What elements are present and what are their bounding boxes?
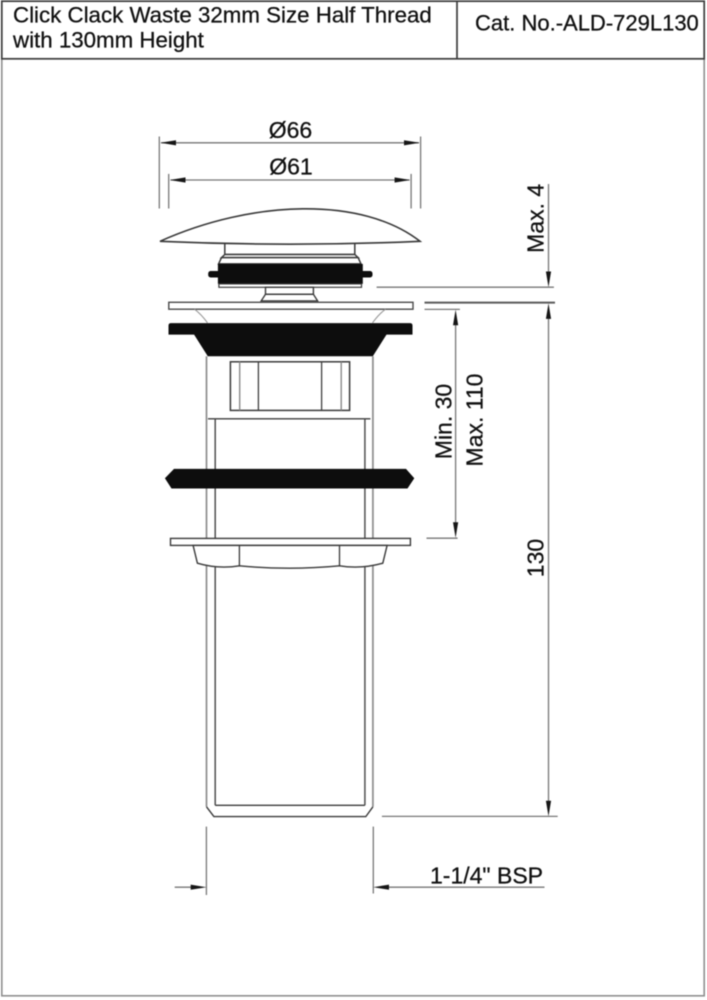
svg-text:with 130mm Height: with 130mm Height [12,27,205,52]
svg-text:Max. 110: Max. 110 [462,374,488,467]
svg-text:Ø66: Ø66 [269,117,312,143]
svg-text:Max. 4: Max. 4 [523,184,549,253]
svg-text:Click Clack Waste 32mm Size Ha: Click Clack Waste 32mm Size Half Thread [13,3,432,28]
svg-text:Min. 30: Min. 30 [431,384,457,459]
svg-text:Ø61: Ø61 [269,153,312,179]
svg-text:Cat. No.-ALD-729L130: Cat. No.-ALD-729L130 [475,10,699,35]
svg-text:130: 130 [523,539,549,577]
svg-text:1-1/4" BSP: 1-1/4" BSP [430,863,543,889]
